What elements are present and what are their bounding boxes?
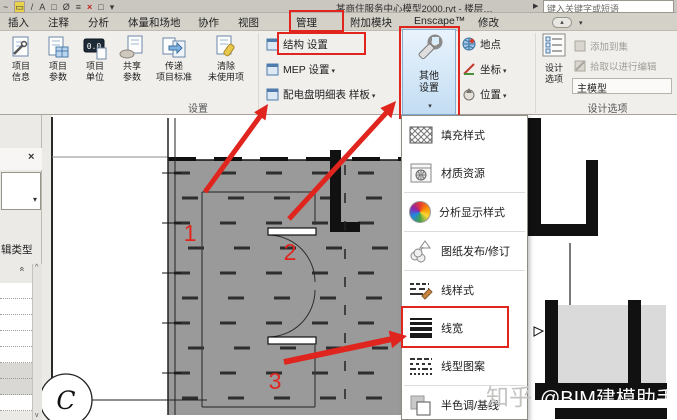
ribbon-minimize-caret-icon[interactable] bbox=[577, 19, 583, 27]
property-row[interactable] bbox=[0, 395, 32, 411]
property-rows bbox=[0, 283, 32, 420]
ribbon-minimize-button[interactable]: ▴ bbox=[552, 17, 572, 28]
type-selector-dropdown[interactable] bbox=[1, 172, 41, 210]
design-options-icon bbox=[542, 33, 566, 57]
property-row[interactable] bbox=[0, 299, 32, 315]
annotation-box-manage-tab bbox=[289, 10, 344, 32]
collapse-chevrons-icon[interactable] bbox=[18, 266, 28, 271]
annotation-box-structural-settings bbox=[277, 32, 366, 55]
property-row[interactable] bbox=[0, 315, 32, 331]
settings-panel-label[interactable]: 设置 bbox=[0, 100, 396, 114]
other-settings-menu: 填充样式 材质资源 分析显示样式 图纸发布/修订 线样式 线宽 线型图案 bbox=[401, 115, 528, 420]
project-information-icon bbox=[8, 34, 34, 60]
tab-collaborate[interactable]: 协作 bbox=[198, 15, 219, 31]
mep-settings-icon bbox=[266, 63, 279, 76]
tab-analyze[interactable]: 分析 bbox=[88, 15, 109, 31]
project-information-button[interactable]: 项目 信息 bbox=[3, 33, 39, 98]
position-icon bbox=[462, 87, 476, 101]
watermark-handle: @BIM建模助手 bbox=[540, 388, 676, 410]
purge-unused-icon bbox=[213, 34, 239, 60]
chevron-down-icon bbox=[33, 195, 37, 204]
property-row[interactable] bbox=[0, 331, 32, 347]
analysis-display-styles-icon bbox=[409, 201, 431, 223]
add-to-set-button: 添加到集 bbox=[574, 38, 628, 53]
tab-annotate[interactable]: 注释 bbox=[48, 15, 69, 31]
measure-icon[interactable]: ▭ bbox=[14, 1, 25, 13]
drawing-canvas[interactable]: C 1 2 3 bbox=[42, 115, 677, 420]
transfer-project-standards-button[interactable]: 传递 项目标准 bbox=[151, 33, 197, 98]
shared-parameters-button[interactable]: 共享 参数 bbox=[114, 33, 150, 98]
panel-schedule-templates-icon bbox=[266, 88, 279, 101]
menu-item-material-assets[interactable]: 材质资源 bbox=[402, 154, 527, 192]
position-button[interactable]: 位置 bbox=[462, 86, 507, 102]
add-to-set-icon bbox=[574, 40, 586, 52]
annotation-box-line-weights bbox=[401, 306, 509, 348]
watermark-prefix: 知乎 bbox=[486, 384, 532, 410]
properties-panel: 辑类型 ^v bbox=[0, 115, 42, 420]
close-icon[interactable] bbox=[28, 151, 34, 163]
menu-item-fill-patterns[interactable]: 填充样式 bbox=[402, 116, 527, 154]
project-parameters-icon bbox=[45, 34, 71, 60]
tab-modify[interactable]: 修改 bbox=[478, 15, 499, 31]
property-row[interactable] bbox=[0, 347, 32, 363]
canvas-gutter bbox=[42, 115, 52, 420]
transfer-project-standards-icon bbox=[161, 34, 187, 60]
pick-to-edit-button: 拾取以进行编辑 bbox=[574, 58, 657, 73]
menu-item-sheet-issues-revisions[interactable]: 图纸发布/修订 bbox=[402, 232, 527, 270]
location-globe-icon bbox=[462, 37, 476, 51]
align-icon[interactable]: / bbox=[31, 2, 34, 12]
design-options-panel-label[interactable]: 设计选项 bbox=[538, 100, 677, 114]
property-row[interactable] bbox=[0, 363, 32, 379]
panel-scrollbar[interactable]: ^v bbox=[32, 264, 42, 420]
menu-item-line-styles[interactable]: 线样式 bbox=[402, 271, 527, 309]
sheet-issues-revisions-icon bbox=[409, 239, 433, 263]
annotation-number-1: 1 bbox=[184, 220, 197, 246]
purge-unused-button[interactable]: 清除 未使用项 bbox=[200, 33, 252, 98]
pick-to-edit-icon bbox=[574, 60, 586, 72]
line-styles-icon bbox=[409, 280, 433, 300]
tab-addins[interactable]: 附加模块 bbox=[350, 15, 392, 31]
text-icon[interactable]: A bbox=[39, 2, 45, 12]
customize-qat-icon[interactable]: ▾ bbox=[110, 2, 115, 12]
coordinates-button[interactable]: 坐标 bbox=[462, 61, 507, 77]
fill-patterns-icon bbox=[409, 125, 433, 145]
material-assets-icon bbox=[409, 162, 433, 184]
scroll-up-icon[interactable]: ^ bbox=[35, 264, 38, 271]
properties-panel-header bbox=[0, 148, 42, 170]
active-design-option-select[interactable]: 主模型 bbox=[572, 78, 672, 94]
search-expander-icon[interactable]: ▶ bbox=[533, 2, 538, 10]
project-units-button[interactable]: 0.0 项目 单位 bbox=[77, 33, 113, 98]
line-patterns-icon bbox=[409, 356, 433, 376]
annotation-box-other-settings bbox=[399, 26, 460, 119]
menu-item-analysis-display-styles[interactable]: 分析显示样式 bbox=[402, 193, 527, 231]
annotation-number-3: 3 bbox=[269, 368, 282, 394]
project-parameters-button[interactable]: 项目 参数 bbox=[40, 33, 76, 98]
default-3d-view-icon[interactable]: □ bbox=[51, 2, 56, 12]
scroll-down-icon[interactable]: v bbox=[35, 412, 39, 419]
spline-icon[interactable]: ~ bbox=[3, 2, 8, 12]
tab-insert[interactable]: 插入 bbox=[8, 15, 29, 31]
annotation-number-2: 2 bbox=[284, 239, 297, 265]
shared-parameters-icon bbox=[119, 34, 145, 60]
revit-window: C 1 2 3 ~ ▭ / A □ Ø ≡ × □ ▾ 某商住服务中心模型200… bbox=[0, 0, 677, 420]
section-icon[interactable]: Ø bbox=[63, 2, 70, 12]
window-title: 某商住服务中心模型2000.rvt - 楼层… bbox=[336, 1, 528, 12]
tile-windows-icon[interactable]: □ bbox=[98, 2, 103, 12]
close-hidden-windows-icon[interactable]: × bbox=[87, 2, 92, 12]
thin-lines-icon[interactable]: ≡ bbox=[76, 2, 81, 12]
watermark: 知乎@BIM建模助手 bbox=[486, 378, 676, 412]
project-units-icon: 0.0 bbox=[82, 34, 108, 60]
property-row[interactable] bbox=[0, 283, 32, 299]
tab-massing-site[interactable]: 体量和场地 bbox=[128, 15, 181, 31]
location-button[interactable]: 地点 bbox=[462, 36, 501, 52]
mep-settings-button[interactable]: MEP 设置 bbox=[266, 61, 335, 77]
halftone-underlay-icon bbox=[409, 394, 433, 416]
help-search-input[interactable]: 键入关键字或短语 bbox=[543, 0, 674, 13]
coordinates-icon bbox=[462, 62, 476, 76]
tab-view[interactable]: 视图 bbox=[238, 15, 259, 31]
edit-type-label[interactable]: 辑类型 bbox=[1, 242, 33, 257]
property-row[interactable] bbox=[0, 379, 32, 395]
grid-bubble-label: C bbox=[56, 386, 75, 415]
quick-access-toolbar: ~ ▭ / A □ Ø ≡ × □ ▾ bbox=[3, 0, 114, 13]
design-options-button[interactable]: 设计 选项 bbox=[540, 33, 568, 97]
